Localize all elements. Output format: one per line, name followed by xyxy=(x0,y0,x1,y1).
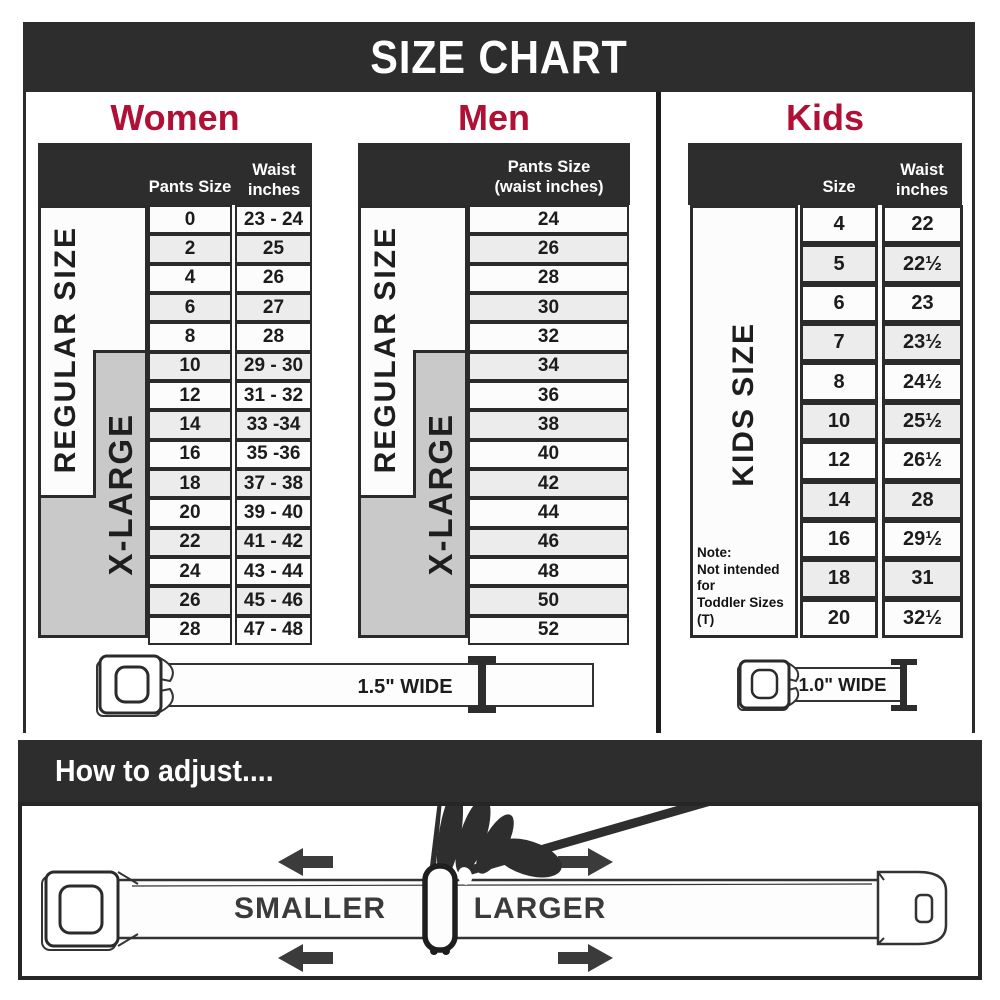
women-size-table: 0 23 - 24 2 25 4 26 6 27 8 28 10 29 - 30… xyxy=(148,205,312,645)
women-xlarge-label: X-LARGE xyxy=(93,350,148,638)
pants-size-cell: 32 xyxy=(468,322,629,351)
waist-cell: 47 - 48 xyxy=(235,616,312,645)
waist-cell: 28 xyxy=(882,481,963,520)
men-size-table: 24 26 28 30 32 34 36 38 40 42 44 46 48 5… xyxy=(468,205,629,645)
pants-size-cell: 44 xyxy=(468,498,629,527)
kids-table-header: Size Waist inches xyxy=(688,143,962,205)
pants-size-cell: 52 xyxy=(468,616,629,645)
pants-size-cell: 28 xyxy=(148,616,232,645)
pants-size-cell: 22 xyxy=(148,528,232,557)
women-regular-size-label: REGULAR SIZE xyxy=(38,205,94,495)
pants-size-cell: 0 xyxy=(148,205,232,234)
pants-size-cell: 48 xyxy=(468,557,629,586)
men-xlarge-label: X-LARGE xyxy=(413,350,468,638)
waist-cell: 35 -36 xyxy=(235,440,312,469)
pants-size-cell: 26 xyxy=(468,234,629,263)
waist-cell: 43 - 44 xyxy=(235,557,312,586)
pants-size-cell: 34 xyxy=(468,352,629,381)
size-chart-header: SIZE CHART xyxy=(23,22,975,92)
waist-cell: 23 xyxy=(882,284,963,323)
pants-size-cell: 6 xyxy=(148,293,232,322)
how-to-adjust-title: How to adjust.... xyxy=(55,740,274,802)
size-cell: 6 xyxy=(800,284,878,323)
kids-size-label: KIDS SIZE xyxy=(693,208,795,601)
pants-size-cell: 50 xyxy=(468,586,629,615)
pants-size-cell: 16 xyxy=(148,440,232,469)
women-section-title: Women xyxy=(38,97,312,139)
pants-size-cell: 38 xyxy=(468,410,629,439)
kids-note: Note: Not intended for Toddler Sizes (T) xyxy=(697,545,795,629)
size-cell: 4 xyxy=(800,205,878,244)
waist-cell: 25 xyxy=(235,234,312,263)
pants-size-cell: 20 xyxy=(148,498,232,527)
pants-size-cell: 40 xyxy=(468,440,629,469)
pants-size-cell: 12 xyxy=(148,381,232,410)
kids-col-waist: Waist inches xyxy=(882,161,962,201)
waist-cell: 32½ xyxy=(882,599,963,638)
waist-cell: 26½ xyxy=(882,441,963,480)
pants-size-cell: 24 xyxy=(468,205,629,234)
waist-cell: 27 xyxy=(235,293,312,322)
pants-size-cell: 28 xyxy=(468,264,629,293)
waist-cell: 41 - 42 xyxy=(235,528,312,557)
size-cell: 16 xyxy=(800,520,878,559)
waist-cell: 29½ xyxy=(882,520,963,559)
waist-cell: 24½ xyxy=(882,362,963,401)
size-cell: 14 xyxy=(800,481,878,520)
men-section-title: Men xyxy=(358,97,630,139)
waist-cell: 37 - 38 xyxy=(235,469,312,498)
waist-cell: 23½ xyxy=(882,323,963,362)
waist-cell: 45 - 46 xyxy=(235,586,312,615)
pants-size-cell: 30 xyxy=(468,293,629,322)
kids-belt-width-label: 1.0" WIDE xyxy=(790,674,895,696)
pants-size-cell: 2 xyxy=(148,234,232,263)
pants-size-cell: 4 xyxy=(148,264,232,293)
waist-cell: 33 -34 xyxy=(235,410,312,439)
size-cell: 7 xyxy=(800,323,878,362)
waist-cell: 29 - 30 xyxy=(235,352,312,381)
size-cell: 10 xyxy=(800,402,878,441)
size-cell: 18 xyxy=(800,559,878,598)
size-chart-title: SIZE CHART xyxy=(370,22,627,92)
waist-cell: 31 - 32 xyxy=(235,381,312,410)
pants-size-cell: 42 xyxy=(468,469,629,498)
men-col-pants-size: Pants Size (waist inches) xyxy=(468,158,630,198)
kids-size-panel: KIDS SIZE Note: Not intended for Toddler… xyxy=(690,205,798,638)
size-cell: 8 xyxy=(800,362,878,401)
waist-cell: 26 xyxy=(235,264,312,293)
kids-section-title: Kids xyxy=(688,97,962,139)
women-table-header: Pants Size Waist inches xyxy=(38,143,312,205)
larger-label: LARGER xyxy=(450,892,630,926)
pants-size-cell: 46 xyxy=(468,528,629,557)
pants-size-cell: 36 xyxy=(468,381,629,410)
waist-cell: 23 - 24 xyxy=(235,205,312,234)
waist-cell: 28 xyxy=(235,322,312,351)
how-to-adjust-header: How to adjust.... xyxy=(18,740,982,802)
men-table-header: Pants Size (waist inches) xyxy=(358,143,630,205)
pants-size-cell: 18 xyxy=(148,469,232,498)
men-regular-size-label: REGULAR SIZE xyxy=(358,205,414,495)
pants-size-cell: 26 xyxy=(148,586,232,615)
waist-cell: 39 - 40 xyxy=(235,498,312,527)
pants-size-cell: 10 xyxy=(148,352,232,381)
size-cell: 20 xyxy=(800,599,878,638)
kids-col-size: Size xyxy=(800,178,878,198)
adult-belt-width-label: 1.5" WIDE xyxy=(330,676,480,699)
women-col-pants-size: Pants Size xyxy=(148,178,232,198)
kids-section-divider xyxy=(656,92,661,733)
how-to-adjust-diagram: SMALLER LARGER xyxy=(18,802,982,980)
waist-cell: 22½ xyxy=(882,244,963,283)
size-cell: 5 xyxy=(800,244,878,283)
adjust-belt-illustration xyxy=(22,806,978,976)
waist-cell: 31 xyxy=(882,559,963,598)
waist-cell: 25½ xyxy=(882,402,963,441)
smaller-label: SMALLER xyxy=(210,892,410,926)
women-col-waist: Waist inches xyxy=(236,161,312,201)
kids-size-table: 4 22 5 22½ 6 23 7 23½ 8 24½ 10 25½ 12 26… xyxy=(800,205,963,638)
size-cell: 12 xyxy=(800,441,878,480)
pants-size-cell: 14 xyxy=(148,410,232,439)
pants-size-cell: 24 xyxy=(148,557,232,586)
pants-size-cell: 8 xyxy=(148,322,232,351)
waist-cell: 22 xyxy=(882,205,963,244)
